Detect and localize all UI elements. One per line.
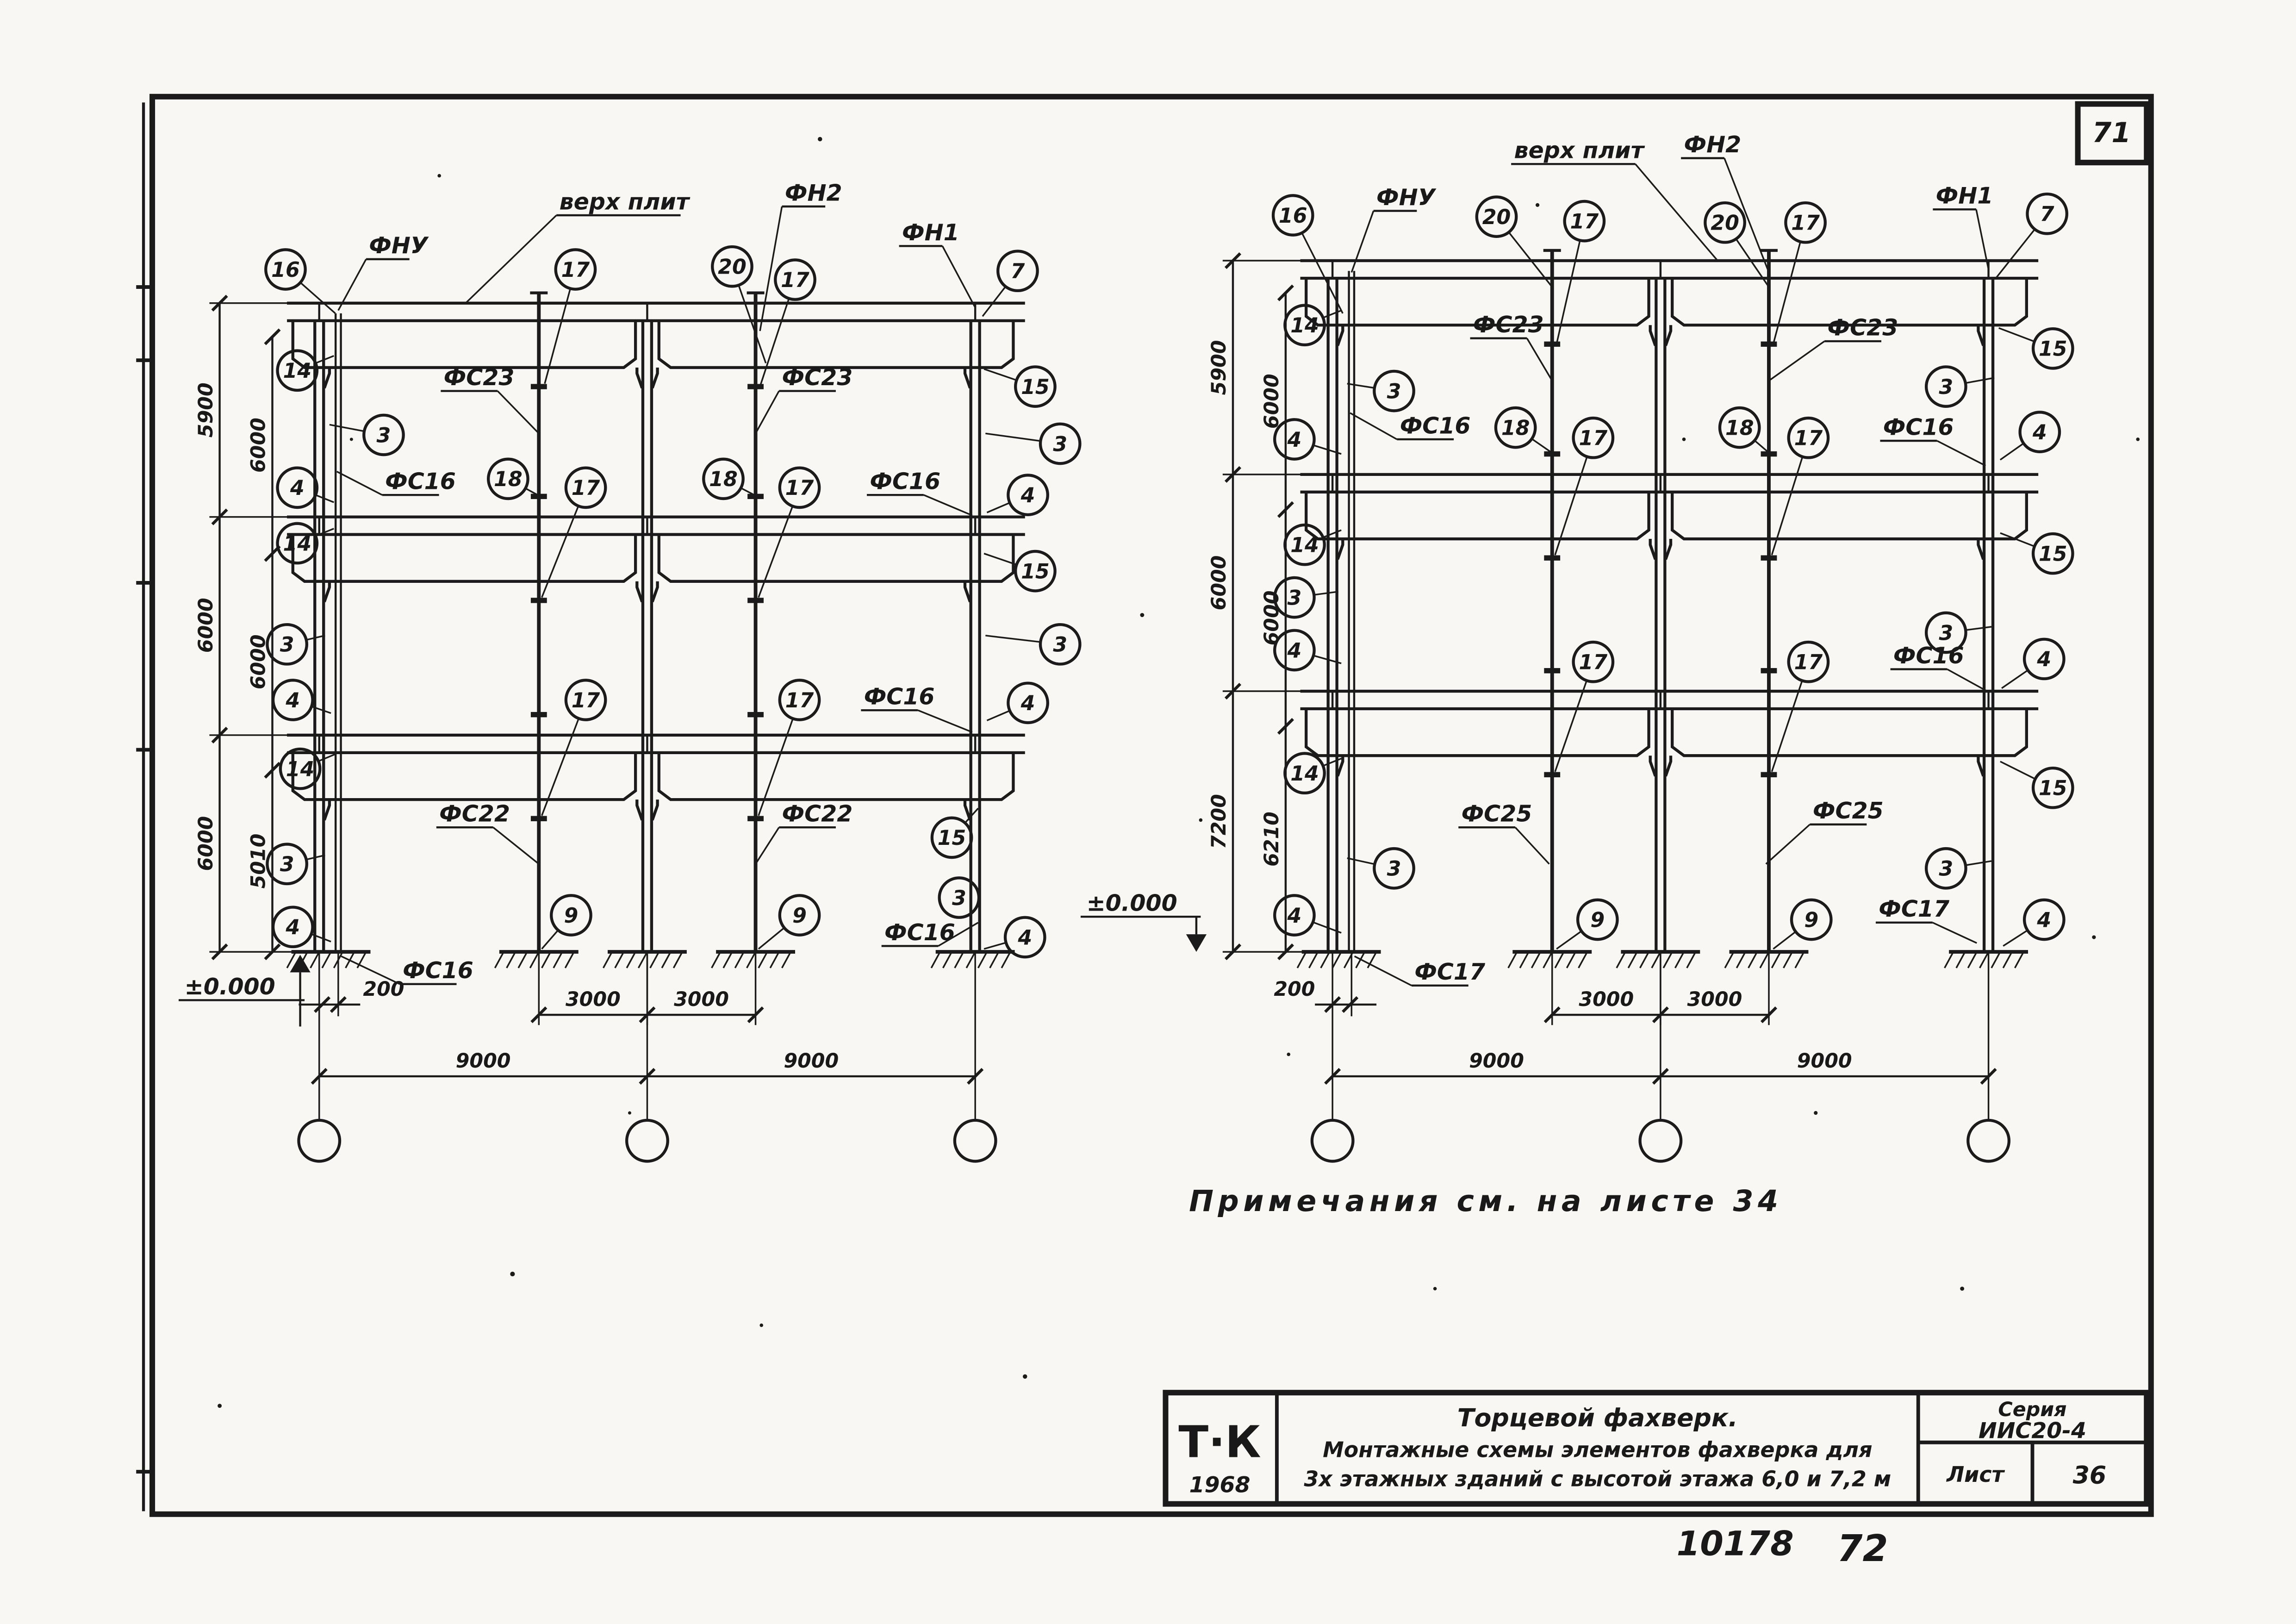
- post-splice-mark: [531, 598, 547, 603]
- part-label: ФНУ: [369, 232, 429, 259]
- leader-line: [2002, 670, 2028, 688]
- dimension-text: 9000: [784, 1049, 839, 1073]
- ground-hatch: [931, 952, 940, 968]
- logo-tk: Т·К: [1178, 1417, 1261, 1468]
- series-value: ИИС20-4: [1979, 1418, 2086, 1443]
- column-corbel: [1338, 539, 1343, 559]
- balloon-number: 17: [785, 476, 814, 500]
- part-label: ФС17: [1414, 958, 1486, 985]
- ground-hatch: [1567, 952, 1575, 968]
- ground-hatch: [955, 952, 964, 968]
- balloon-number: 15: [1021, 560, 1050, 583]
- part-label: ФС23: [1828, 314, 1898, 341]
- ground-hatch: [1772, 952, 1780, 968]
- ground-hatch: [565, 952, 574, 968]
- balloon-number: 4: [1017, 926, 1032, 949]
- level-mark-text: ±0.000: [185, 973, 275, 1000]
- balloon-number: 4: [1287, 904, 1301, 928]
- post-splice-mark: [1544, 772, 1560, 777]
- part-label: ФС17: [1879, 895, 1950, 922]
- floor-panel-band: [659, 321, 1014, 368]
- balloon-number: 4: [2036, 908, 2051, 932]
- sheet-label: Лист: [1946, 1462, 2005, 1487]
- balloon-number: 17: [1791, 212, 1820, 235]
- leader-line: [2003, 931, 2028, 946]
- balloon-number: 4: [2036, 648, 2051, 671]
- dimension-text: 6000: [194, 816, 218, 871]
- column-corbel: [637, 581, 657, 602]
- ground-hatch: [1321, 952, 1330, 968]
- level-mark-text: ±0.000: [1087, 890, 1177, 917]
- column-corbel: [1650, 539, 1671, 559]
- balloon-number: 3: [1053, 633, 1067, 657]
- post-splice-mark: [1544, 342, 1560, 347]
- part-label: ФС16: [870, 468, 940, 495]
- balloon-number: 14: [286, 758, 315, 781]
- ground-hatch: [1795, 952, 1804, 968]
- ground-hatch: [1956, 952, 1965, 968]
- page-number: 71: [2092, 117, 2131, 149]
- leader-line: [493, 827, 539, 864]
- leader-line: [1351, 211, 1373, 273]
- leader-line: [1966, 861, 1991, 865]
- scheme-storey-7.2m: 5900600072006000600062102003000300090009…: [1081, 131, 2073, 1161]
- balloon-number: 9: [564, 904, 579, 928]
- ground-hatch: [1628, 952, 1637, 968]
- post-splice-mark: [1544, 668, 1560, 673]
- ground-hatch: [1663, 952, 1672, 968]
- balloon-number: 17: [1579, 427, 1608, 450]
- balloon-number: 18: [1501, 416, 1530, 440]
- floor-panel-band: [293, 753, 635, 800]
- leader-line: [1555, 681, 1587, 772]
- axis-circle: [299, 1120, 340, 1162]
- part-label: ФС23: [444, 364, 515, 391]
- leader-line: [542, 718, 579, 816]
- leader-line: [1996, 229, 2035, 278]
- balloon-number: 9: [1590, 908, 1605, 932]
- ground-hatch: [1736, 952, 1745, 968]
- leader-line: [1736, 239, 1769, 287]
- ground-hatch: [518, 952, 527, 968]
- ground-hatch: [782, 952, 791, 968]
- leader-line: [756, 391, 779, 434]
- ground-hatch: [966, 952, 975, 968]
- part-label: ФН2: [785, 179, 842, 206]
- balloon-number: 3: [1387, 380, 1401, 403]
- title-line3: 3х этажных зданий с высотой этажа 6,0 и …: [1304, 1467, 1891, 1492]
- post-splice-mark: [747, 816, 764, 821]
- drawing-canvas: 71 5900600060006000600050102003000300090…: [0, 0, 2296, 1624]
- part-label: ФС23: [782, 364, 853, 391]
- column-corbel: [324, 368, 330, 388]
- ground-hatch: [1543, 952, 1552, 968]
- leader-line: [942, 246, 975, 307]
- balloon-number: 3: [952, 887, 966, 910]
- leader-line: [498, 391, 539, 434]
- column-corbel: [1650, 325, 1671, 345]
- dimension-text: 6000: [1260, 374, 1283, 429]
- leader-line: [1772, 681, 1802, 772]
- balloon-number: 4: [1287, 639, 1301, 662]
- leader-line: [1515, 827, 1549, 864]
- balloon-number: 17: [1579, 651, 1608, 675]
- balloon-number: 3: [377, 424, 391, 447]
- balloon-number: 15: [2039, 543, 2067, 566]
- ground-hatch: [1531, 952, 1540, 968]
- leader-line: [1773, 932, 1795, 949]
- leader-line: [1769, 341, 1824, 381]
- ground-hatch: [638, 952, 647, 968]
- balloon-number: 16: [271, 258, 300, 282]
- balloon-number: 15: [2039, 777, 2067, 800]
- part-label: ФС16: [1400, 412, 1471, 439]
- balloon-number: 20: [1711, 212, 1739, 235]
- part-label: ФС16: [1893, 642, 1964, 669]
- balloon-number: 20: [1482, 206, 1511, 229]
- leader-line: [984, 554, 1016, 565]
- column-corbel: [1978, 756, 1983, 776]
- scheme-storey-6.0m: 5900600060006000600050102003000300090009…: [179, 179, 1080, 1161]
- post-splice-mark: [1761, 772, 1777, 777]
- ground-hatch: [495, 952, 504, 968]
- axis-circle: [627, 1120, 668, 1162]
- balloon-number: 4: [1020, 484, 1035, 507]
- floor-panel-band: [1672, 709, 2027, 756]
- post-splice-mark: [1761, 555, 1777, 560]
- ground-hatch: [712, 952, 721, 968]
- dimension-text: 9000: [1797, 1049, 1852, 1073]
- leader-line: [542, 930, 558, 949]
- leader-line: [1350, 413, 1397, 439]
- leader-line: [756, 827, 779, 864]
- balloon-number: 3: [1387, 857, 1401, 881]
- floor-panel-band: [1306, 709, 1649, 756]
- stamp-numbers: 10178 72: [1677, 1524, 1888, 1570]
- post-splice-mark: [1544, 555, 1560, 560]
- balloon-number: 20: [718, 256, 747, 279]
- ground-hatch: [1968, 952, 1977, 968]
- part-label: ФС25: [1813, 797, 1884, 824]
- part-label: ФС16: [1883, 413, 1954, 440]
- leader-line: [1347, 384, 1375, 388]
- ground-hatch: [1002, 952, 1010, 968]
- ground-hatch: [723, 952, 732, 968]
- leader-line: [924, 495, 972, 515]
- axis-circle: [1640, 1120, 1681, 1162]
- leader-line: [1947, 669, 1987, 691]
- dimension-text: 6000: [1207, 556, 1231, 611]
- balloon-number: 15: [2039, 337, 2067, 361]
- ground-hatch: [650, 952, 659, 968]
- floor-panel-band: [659, 753, 1014, 800]
- level-mark-triangle: [1186, 934, 1207, 952]
- balloon-number: 18: [494, 468, 523, 491]
- balloon-number: 14: [1290, 762, 1319, 786]
- dimension-text: 6000: [194, 598, 218, 653]
- balloon-number: 17: [572, 689, 600, 712]
- dimension-text: 200: [363, 978, 404, 1001]
- column-corbel: [965, 581, 970, 602]
- dimension-text: 6000: [247, 418, 270, 473]
- leader-line: [2000, 443, 2023, 460]
- stamp-number-right: 72: [1837, 1527, 1888, 1570]
- ground-hatch: [542, 952, 551, 968]
- ground-hatch: [1945, 952, 1954, 968]
- ground-hatch: [627, 952, 635, 968]
- ground-hatch: [747, 952, 756, 968]
- axis-circle: [1312, 1120, 1353, 1162]
- ground-hatch: [322, 952, 331, 968]
- balloon-number: 17: [785, 689, 814, 712]
- part-label: ФС25: [1462, 800, 1532, 827]
- title-block: Т·К 1968 Торцевой фахверк. Монтажные схе…: [1165, 1393, 2147, 1504]
- part-label: ФС23: [1473, 311, 1544, 338]
- leader-line: [1635, 164, 1717, 261]
- balloon-number: 14: [1290, 314, 1319, 337]
- part-label: ФН2: [1684, 131, 1741, 158]
- part-label: ФН1: [1936, 182, 1993, 209]
- part-label: ФС16: [385, 468, 456, 495]
- ground-hatch: [1784, 952, 1792, 968]
- balloon-number: 18: [1725, 416, 1754, 440]
- ground-hatch: [759, 952, 767, 968]
- ground-hatch: [1508, 952, 1517, 968]
- schemes-layer: 5900600060006000600050102003000300090009…: [179, 131, 2073, 1161]
- post-splice-mark: [1761, 668, 1777, 673]
- leader-line: [542, 506, 579, 598]
- balloon-number: 7: [2040, 203, 2054, 226]
- leader-line: [1966, 627, 1991, 630]
- leader-line: [759, 928, 784, 949]
- balloon-number: 17: [1794, 427, 1823, 450]
- column-corbel: [637, 800, 657, 820]
- column-corbel: [1338, 325, 1343, 345]
- ground-hatch: [1748, 952, 1757, 968]
- ground-hatch: [1297, 952, 1306, 968]
- ground-hatch: [311, 952, 319, 968]
- dimension-text: 7200: [1207, 794, 1231, 849]
- column-corbel: [324, 581, 330, 602]
- axis-circle: [1968, 1120, 2009, 1162]
- balloon-number: 14: [283, 532, 311, 556]
- balloon-number: 3: [1939, 857, 1953, 881]
- part-label: ФС22: [439, 800, 510, 827]
- column-corbel: [324, 800, 330, 820]
- leader-line: [918, 710, 972, 732]
- column-corbel: [1978, 325, 1983, 345]
- ground-hatch: [1617, 952, 1625, 968]
- balloon-number: 15: [938, 826, 966, 850]
- ground-hatch: [978, 952, 987, 968]
- ground-hatch: [1579, 952, 1587, 968]
- balloon-number: 18: [709, 468, 738, 491]
- dimension-text: 5900: [1207, 340, 1231, 395]
- balloon-number: 17: [572, 476, 600, 500]
- leader-line: [318, 754, 336, 761]
- ground-hatch: [1725, 952, 1734, 968]
- sheet-value: 36: [2073, 1462, 2107, 1489]
- balloon-number: 3: [1053, 432, 1067, 456]
- floor-panel-band: [1306, 492, 1649, 539]
- leader-line: [466, 215, 556, 303]
- leader-line: [1556, 240, 1580, 344]
- ground-hatch: [604, 952, 612, 968]
- dimension-text: 3000: [1579, 988, 1634, 1011]
- ground-hatch: [770, 952, 779, 968]
- dimension-text: 200: [1274, 978, 1315, 1001]
- balloon-number: 14: [1290, 534, 1319, 557]
- ground-hatch: [2003, 952, 2012, 968]
- post-splice-mark: [747, 598, 764, 603]
- balloon-number: 3: [280, 633, 294, 657]
- dimension-text: 9000: [456, 1049, 511, 1073]
- ground-hatch: [990, 952, 999, 968]
- balloon-number: 16: [1279, 204, 1307, 228]
- ground-hatch: [1640, 952, 1649, 968]
- axis-circle: [955, 1120, 996, 1162]
- balloon-number: 4: [2032, 421, 2047, 444]
- title-line2: Монтажные схемы элементов фахверка для: [1323, 1437, 1872, 1462]
- ground-hatch: [943, 952, 952, 968]
- leader-line: [1323, 530, 1341, 537]
- ground-hatch: [1675, 952, 1684, 968]
- leader-line: [1302, 233, 1343, 313]
- ground-hatch: [1332, 952, 1341, 968]
- balloon-number: 15: [1021, 375, 1050, 399]
- ground-hatch: [1991, 952, 2000, 968]
- balloon-number: 4: [285, 916, 300, 939]
- leader-line: [987, 503, 1009, 512]
- column-corbel: [637, 368, 657, 388]
- balloon-number: 17: [561, 258, 590, 282]
- dimension-text: 3000: [566, 988, 621, 1011]
- drawing-sheet: 71 5900600060006000600050102003000300090…: [0, 0, 2296, 1624]
- leader-line: [1556, 931, 1581, 949]
- balloon-number: 4: [1020, 692, 1035, 715]
- logo-year: 1968: [1189, 1472, 1251, 1498]
- balloon-number: 17: [1794, 651, 1823, 675]
- balloon-number: 3: [1287, 586, 1301, 610]
- page-number-box: 71: [2078, 104, 2147, 163]
- leader-line: [984, 369, 1016, 380]
- leader-line: [2000, 762, 2035, 779]
- balloon-number: 9: [1804, 908, 1818, 932]
- floor-panel-band: [659, 535, 1014, 581]
- floor-panel-band: [1672, 492, 2027, 539]
- leader-line: [984, 943, 1006, 949]
- ground-hatch: [615, 952, 624, 968]
- part-label: верх плит: [1514, 137, 1645, 164]
- balloon-number: 7: [1011, 260, 1025, 283]
- column-corbel: [1978, 539, 1983, 559]
- ground-hatch: [2015, 952, 2024, 968]
- post-splice-mark: [531, 712, 547, 717]
- ground-hatch: [1309, 952, 1318, 968]
- part-label: ФС16: [864, 683, 935, 710]
- column-corbel: [965, 368, 970, 388]
- part-label: ФС22: [782, 800, 853, 827]
- leader-line: [1966, 378, 1994, 383]
- balloon-number: 4: [290, 476, 305, 500]
- leader-line: [1347, 858, 1375, 864]
- stamp-number-left: 10178: [1677, 1524, 1794, 1563]
- floor-panel-band: [293, 535, 635, 581]
- ground-hatch: [1980, 952, 1989, 968]
- floor-panel-band: [293, 321, 635, 368]
- balloon-number: 4: [1287, 428, 1301, 452]
- ground-hatch: [673, 952, 682, 968]
- balloon-number: 17: [1570, 210, 1599, 233]
- title-line1: Торцевой фахверк.: [1457, 1403, 1738, 1432]
- dimension-text: 3000: [1687, 988, 1742, 1011]
- ground-hatch: [1687, 952, 1696, 968]
- ground-hatch: [1520, 952, 1529, 968]
- leader-line: [985, 433, 1040, 441]
- leader-line: [300, 282, 336, 313]
- balloon-number: 9: [792, 904, 807, 928]
- ground-hatch: [735, 952, 744, 968]
- ground-hatch: [554, 952, 562, 968]
- leader-line: [1355, 956, 1412, 986]
- dimension-text: 3000: [674, 988, 729, 1011]
- post-splice-mark: [531, 816, 547, 821]
- part-label: ФНУ: [1376, 184, 1437, 211]
- ground-hatch: [662, 952, 671, 968]
- column-corbel: [1650, 756, 1671, 776]
- leader-line: [983, 287, 1006, 316]
- ground-hatch: [1555, 952, 1564, 968]
- dimension-text: 5900: [194, 382, 218, 437]
- leader-line: [337, 472, 382, 495]
- part-label: ФС16: [403, 957, 473, 984]
- balloon-number: 3: [280, 853, 294, 876]
- leader-line: [1933, 923, 1977, 943]
- ground-hatch: [507, 952, 516, 968]
- balloon-number: 3: [1939, 621, 1953, 645]
- balloon-number: 4: [285, 689, 300, 712]
- part-label: ФН1: [902, 219, 959, 246]
- leader-line: [1773, 242, 1800, 344]
- balloon-number: 17: [781, 269, 809, 292]
- leader-line: [1766, 824, 1810, 864]
- balloon-number: 3: [1939, 375, 1953, 399]
- leader-line: [1314, 592, 1338, 595]
- balloon-number: 14: [283, 359, 311, 383]
- ground-hatch: [1760, 952, 1769, 968]
- post-splice-mark: [747, 712, 764, 717]
- post-splice-mark: [531, 384, 547, 389]
- part-label: верх плит: [560, 188, 691, 215]
- leader-line: [1999, 328, 2035, 342]
- leader-line: [1323, 759, 1341, 766]
- leader-line: [1323, 311, 1341, 318]
- leader-line: [1937, 441, 1985, 466]
- dimension-text: 6210: [1260, 812, 1283, 867]
- dimension-text: 9000: [1469, 1049, 1524, 1073]
- leader-line: [985, 636, 1040, 642]
- leader-line: [987, 711, 1009, 720]
- ground-hatch: [530, 952, 539, 968]
- note-text: Примечания см. на листе 34: [1189, 1184, 1782, 1218]
- ground-hatch: [1652, 952, 1661, 968]
- leader-line: [759, 506, 793, 597]
